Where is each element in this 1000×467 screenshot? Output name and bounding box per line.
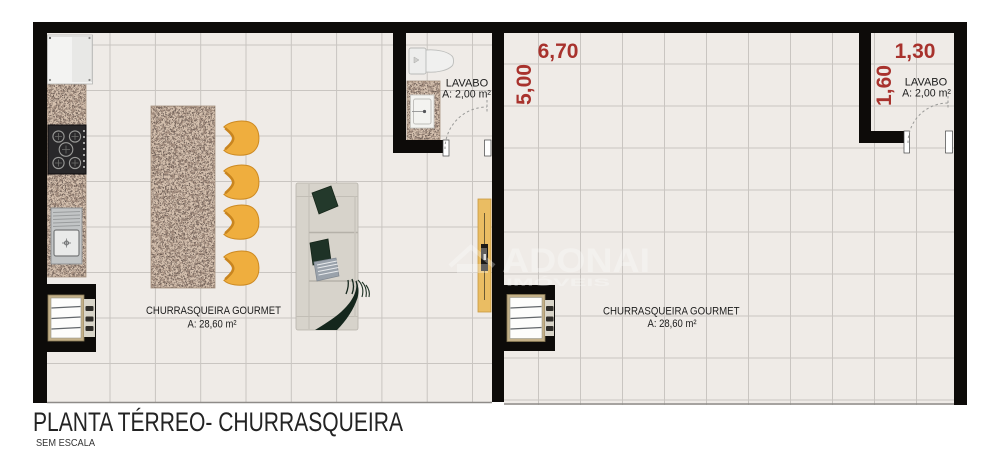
svg-text:IMÓVEIS: IMÓVEIS (506, 276, 610, 289)
svg-text:SEM ESCALA: SEM ESCALA (36, 438, 95, 449)
svg-text:PLANTA TÉRREO- CHURRASQUEIRA: PLANTA TÉRREO- CHURRASQUEIRA (33, 407, 403, 437)
svg-text:CHURRASQUEIRA GOURMET: CHURRASQUEIRA GOURMET (603, 306, 740, 318)
svg-text:CHURRASQUEIRA GOURMET: CHURRASQUEIRA GOURMET (146, 305, 281, 317)
svg-text:A: 2,00 m²: A: 2,00 m² (442, 89, 491, 101)
svg-text:1,60: 1,60 (873, 65, 896, 106)
svg-text:A: 2,00 m²: A: 2,00 m² (902, 88, 951, 100)
svg-text:6,70: 6,70 (538, 40, 579, 63)
svg-text:5,00: 5,00 (513, 64, 536, 105)
svg-text:ADONAI: ADONAI (502, 242, 650, 280)
svg-text:A: 28,60 m²: A: 28,60 m² (188, 319, 237, 331)
svg-text:A: 28,60 m²: A: 28,60 m² (648, 318, 697, 330)
svg-text:1,30: 1,30 (895, 40, 936, 63)
